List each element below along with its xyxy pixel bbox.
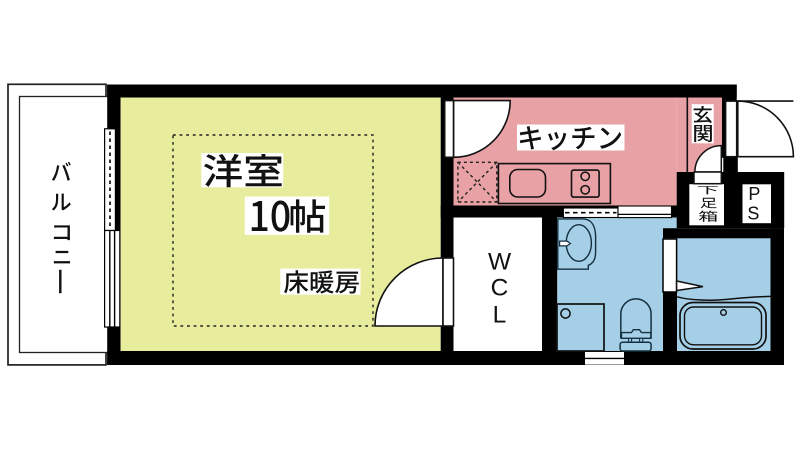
svg-text:S: S bbox=[747, 204, 759, 224]
svg-text:W: W bbox=[488, 249, 512, 276]
svg-text:C: C bbox=[491, 274, 509, 301]
svg-text:P: P bbox=[748, 184, 760, 204]
svg-text:L: L bbox=[493, 301, 507, 328]
